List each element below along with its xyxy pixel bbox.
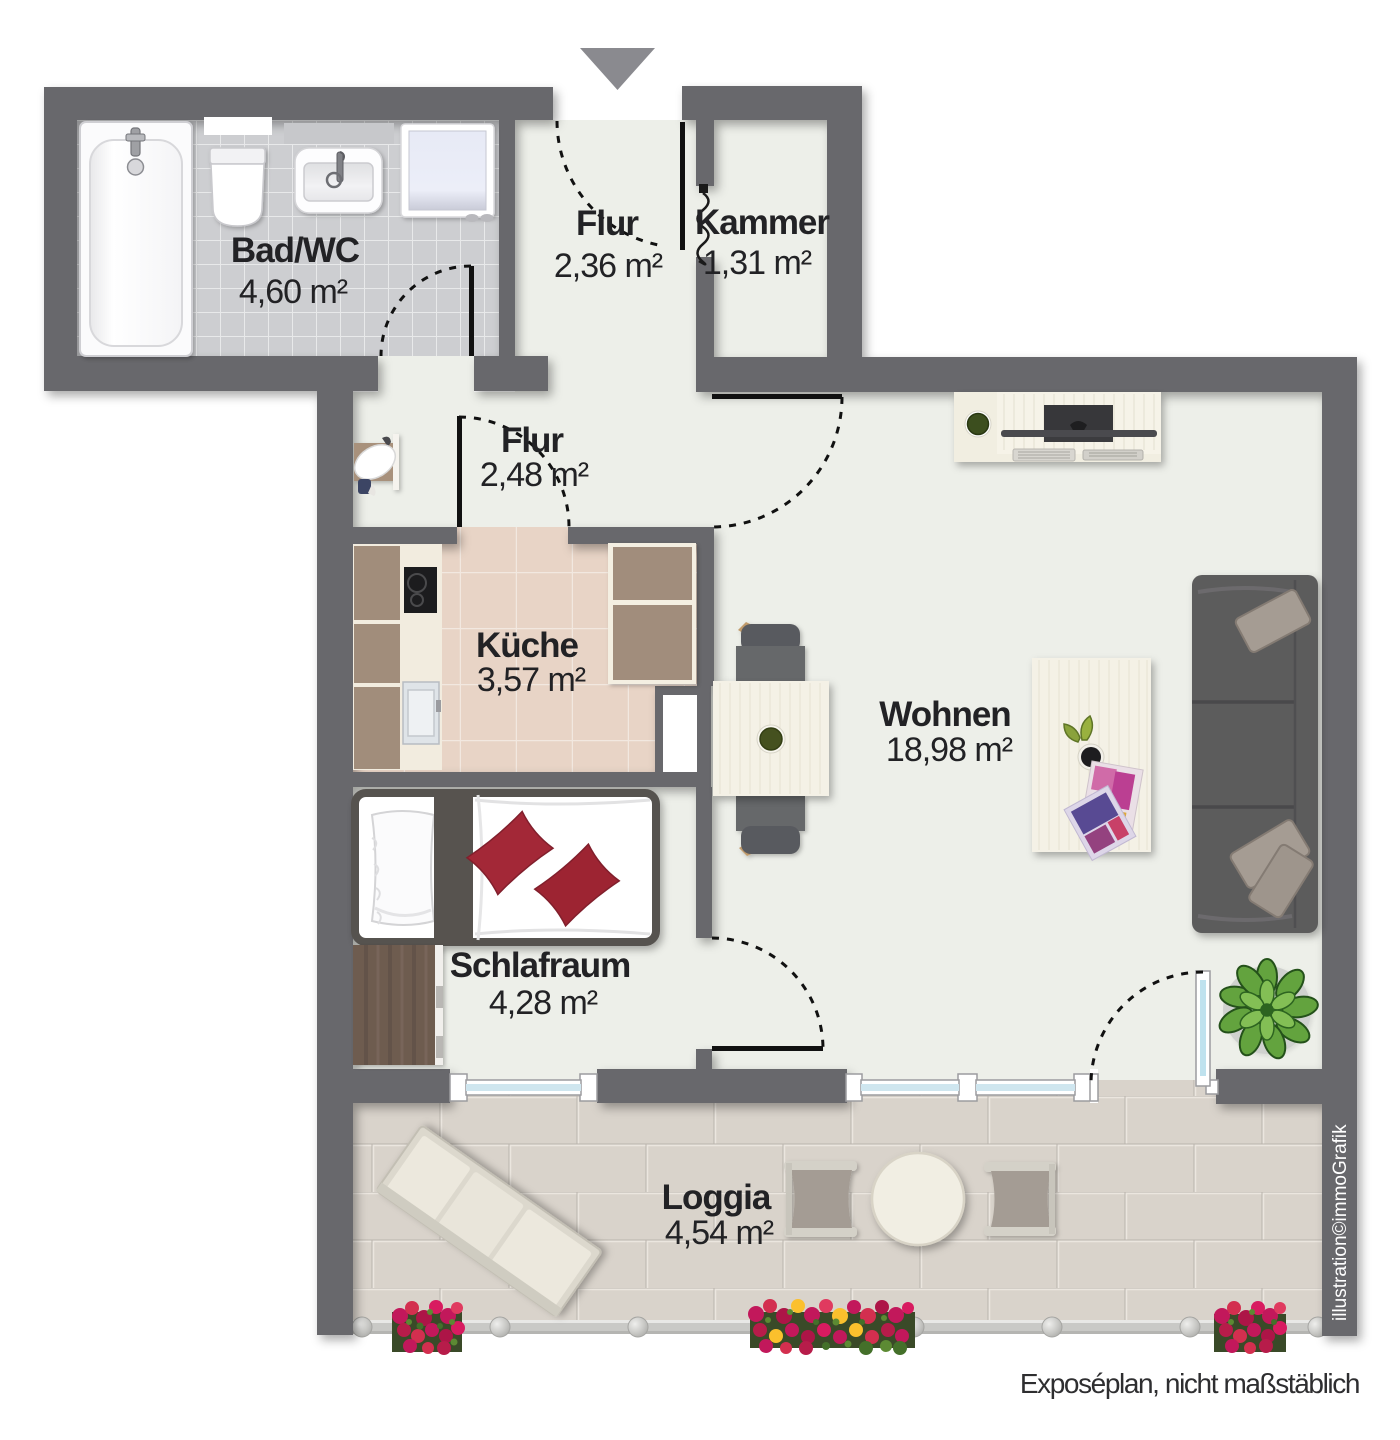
- svg-text:Wohnen: Wohnen: [879, 695, 1010, 734]
- svg-text:Bad/WC: Bad/WC: [231, 231, 360, 270]
- svg-text:Küche: Küche: [476, 626, 579, 665]
- svg-text:Loggia: Loggia: [662, 1178, 772, 1217]
- svg-text:2,36 m²: 2,36 m²: [554, 247, 663, 285]
- svg-text:4,28 m²: 4,28 m²: [489, 984, 598, 1022]
- svg-text:4,54 m²: 4,54 m²: [665, 1214, 774, 1252]
- svg-text:18,98 m²: 18,98 m²: [886, 731, 1013, 769]
- svg-text:Kammer: Kammer: [695, 203, 830, 242]
- svg-text:4,60 m²: 4,60 m²: [239, 273, 348, 311]
- svg-text:Flur: Flur: [501, 421, 564, 460]
- svg-text:illustration©immoGrafik: illustration©immoGrafik: [1330, 1124, 1351, 1321]
- svg-text:1,31 m²: 1,31 m²: [703, 244, 812, 282]
- svg-text:Flur: Flur: [576, 204, 639, 243]
- svg-text:3,57 m²: 3,57 m²: [477, 661, 586, 699]
- svg-text:Exposéplan, nicht maßstäblich: Exposéplan, nicht maßstäblich: [1020, 1368, 1359, 1399]
- svg-text:2,48 m²: 2,48 m²: [480, 456, 589, 494]
- svg-text:Schlafraum: Schlafraum: [450, 946, 631, 985]
